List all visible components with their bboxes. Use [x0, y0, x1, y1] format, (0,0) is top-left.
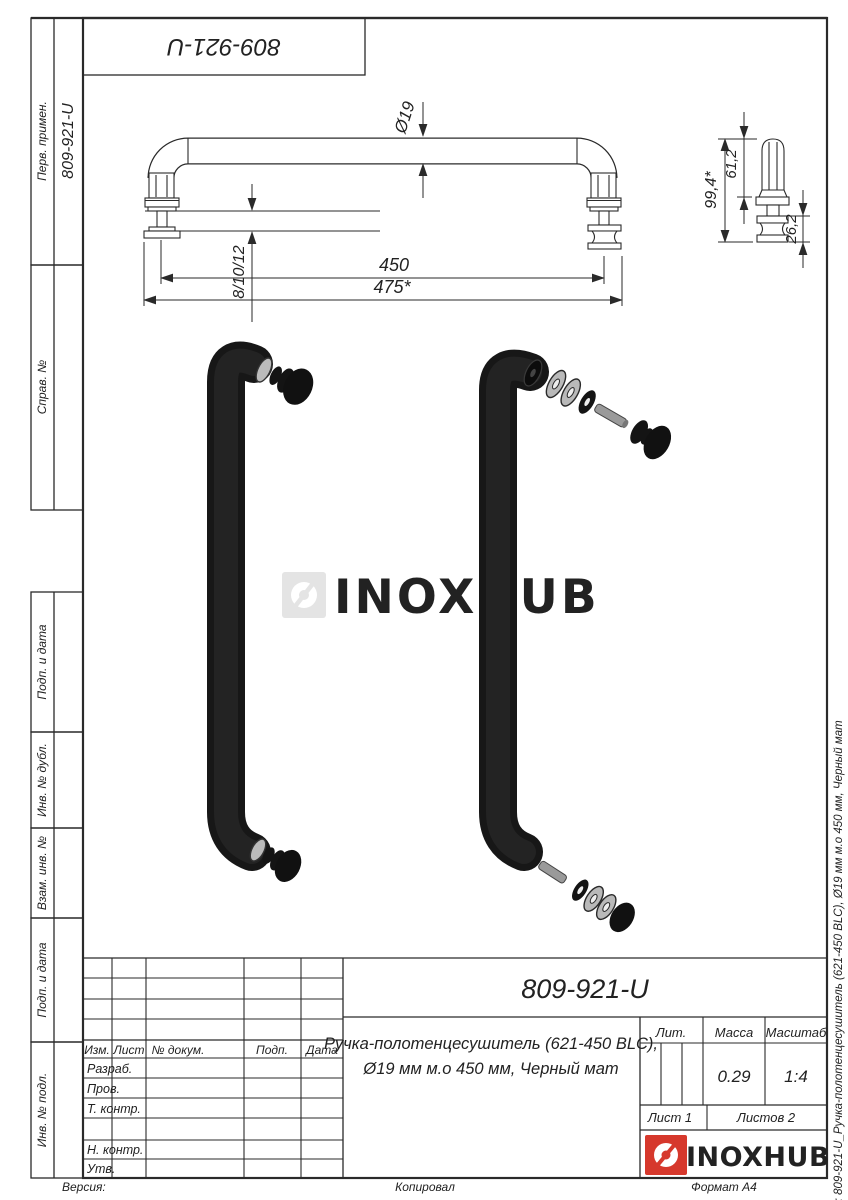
scale-value: 1:4	[784, 1067, 808, 1086]
inoxhub-logo-icon	[645, 1135, 687, 1175]
dim-side-upper: 61,2	[723, 149, 740, 179]
top-box-code: 809-921-U	[167, 33, 281, 60]
scale-label: Масштаб	[766, 1025, 827, 1040]
sheet-number: Лист 1	[647, 1110, 692, 1125]
stamp-inv-podl: Инв. № подл.	[35, 1073, 49, 1147]
stamp-podp-data-1: Подп. и дата	[35, 624, 49, 699]
header-doc: № докум.	[152, 1043, 205, 1057]
stamp-perv-primen-value: 809-921-U	[60, 103, 77, 179]
row-razrab: Разраб.	[87, 1062, 132, 1076]
stamp-vzam-inv: Взам. инв. №	[35, 836, 49, 910]
render-assembled-handle	[226, 350, 319, 886]
stamp-inv-dubl: Инв. № дубл.	[35, 743, 49, 817]
footer-copied: Копировал	[395, 1180, 455, 1194]
side-view: 99,4* 61,2 26,2	[703, 112, 810, 268]
drawing-sheet: INOXHUB Ø19 8/10/12	[0, 0, 848, 1200]
header-izm: Изм.	[84, 1043, 110, 1057]
footer-format: Формат А4	[691, 1180, 757, 1194]
mass-label: Масса	[715, 1025, 753, 1040]
sheets-total: Листов 2	[736, 1110, 796, 1125]
watermark-logo-icon	[282, 572, 326, 618]
front-view: Ø19 8/10/12 450 475*	[144, 99, 622, 322]
drawing-canvas: INOXHUB Ø19 8/10/12	[0, 0, 848, 1200]
stamp-podp-data-2: Подп. и дата	[35, 942, 49, 1017]
row-tkontr: Т. контр.	[87, 1102, 141, 1116]
header-data: Дата	[304, 1043, 338, 1057]
render-exploded-handle	[498, 357, 677, 936]
file-note: Файл: 809-921-U_Ручка-полотенцесушитель …	[833, 720, 845, 1200]
row-nkontr: Н. контр.	[87, 1143, 143, 1157]
dim-mounting-distance: 450	[379, 255, 409, 275]
dim-side-knob: 26,2	[783, 214, 800, 245]
dim-glass-thickness: 8/10/12	[231, 245, 248, 298]
bottom-exploded-parts	[531, 851, 640, 937]
titleblock-description-line1: Ручка-полотенцесушитель (621-450 BLC),	[324, 1035, 658, 1053]
stamp-perv-primen: Перв. примен.	[35, 101, 49, 181]
lit-label: Лит.	[655, 1025, 686, 1040]
dim-overall-length: 475*	[373, 277, 411, 297]
row-prov: Пров.	[87, 1082, 120, 1096]
inoxhub-wordmark: INOXHUB	[686, 1142, 830, 1173]
dim-diameter: Ø19	[390, 99, 418, 137]
watermark-text: INOXHUB	[334, 570, 600, 625]
titleblock-designation: 809-921-U	[521, 974, 649, 1004]
row-utv: Утв.	[86, 1162, 115, 1176]
header-list: Лист	[113, 1043, 145, 1057]
titleblock-description-line2: Ø19 мм м.о 450 мм, Черный мат	[362, 1060, 618, 1078]
header-podp: Подп.	[256, 1043, 288, 1057]
footer-version: Версия:	[62, 1180, 106, 1194]
mass-value: 0.29	[717, 1067, 751, 1086]
top-exploded-parts	[541, 365, 677, 464]
stamp-sprav-no: Справ. №	[35, 360, 49, 415]
dim-side-overall: 99,4*	[703, 171, 720, 209]
